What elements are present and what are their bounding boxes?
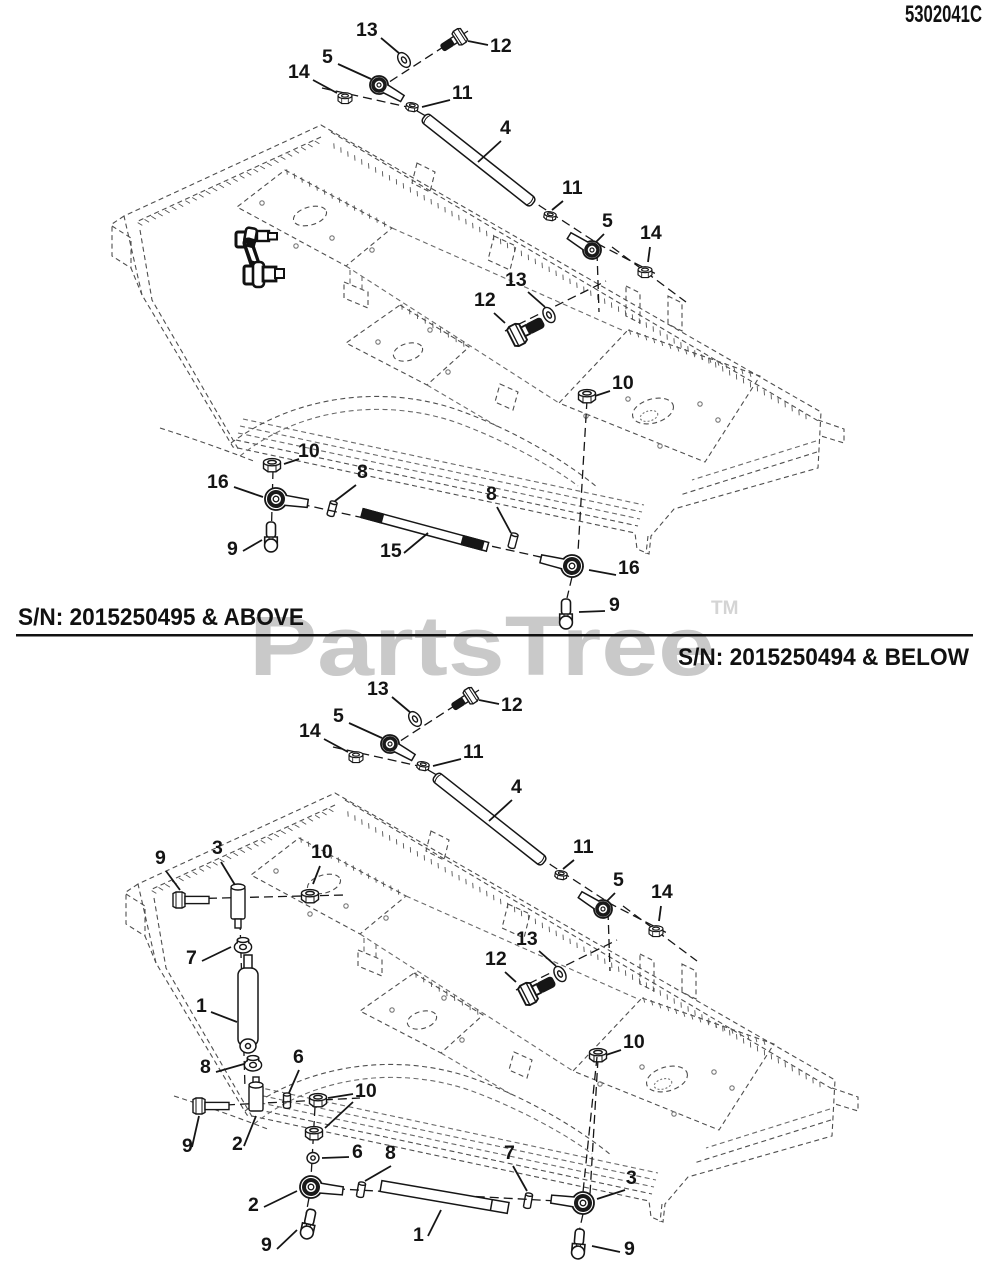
svg-text:8: 8: [486, 483, 497, 505]
svg-text:S/N: 2015250494 & BELOW: S/N: 2015250494 & BELOW: [678, 644, 969, 671]
svg-text:2: 2: [232, 1133, 243, 1155]
svg-text:15: 15: [380, 540, 402, 562]
svg-text:S/N: 2015250495 & ABOVE: S/N: 2015250495 & ABOVE: [18, 604, 304, 631]
svg-text:10: 10: [355, 1080, 377, 1102]
svg-text:10: 10: [298, 440, 320, 462]
svg-text:16: 16: [207, 471, 229, 493]
svg-text:TM: TM: [711, 598, 738, 619]
svg-text:16: 16: [618, 557, 640, 579]
svg-text:3: 3: [212, 837, 223, 859]
svg-text:1: 1: [413, 1224, 424, 1246]
svg-text:8: 8: [357, 461, 368, 483]
svg-text:8: 8: [200, 1056, 211, 1078]
svg-text:PartsTree: PartsTree: [249, 599, 715, 693]
svg-text:1: 1: [196, 995, 207, 1017]
svg-text:6: 6: [352, 1141, 363, 1163]
svg-text:7: 7: [186, 947, 197, 969]
svg-text:8: 8: [385, 1142, 396, 1164]
svg-text:9: 9: [155, 847, 166, 869]
svg-text:9: 9: [227, 538, 238, 560]
svg-text:10: 10: [311, 841, 333, 863]
svg-text:2: 2: [248, 1194, 259, 1216]
svg-text:9: 9: [624, 1238, 635, 1260]
svg-text:5302041C: 5302041C: [905, 1, 982, 28]
svg-text:9: 9: [261, 1234, 272, 1256]
svg-text:3: 3: [626, 1167, 637, 1189]
svg-text:7: 7: [504, 1142, 515, 1164]
svg-text:9: 9: [609, 594, 620, 616]
svg-text:6: 6: [293, 1046, 304, 1068]
